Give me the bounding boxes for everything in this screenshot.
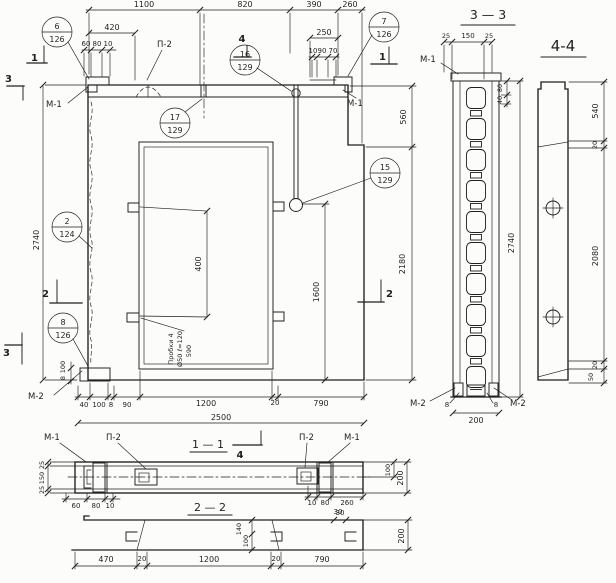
dim-260: 260 — [340, 499, 353, 507]
callout-number: 2 — [64, 217, 69, 226]
dim-80: 80 — [496, 84, 504, 92]
dim-8: 8 — [109, 401, 113, 409]
dim-200: 200 — [396, 470, 405, 485]
dim-200: 200 — [397, 528, 406, 543]
dim-8: 8 — [59, 376, 67, 380]
mark-m2-label: М-2 — [510, 399, 526, 409]
callout-sheet: 126 — [49, 35, 64, 44]
dim-470: 470 — [98, 555, 113, 564]
section-1-1-title: 1 — 1 — [192, 438, 224, 451]
callout-number: 7 — [381, 17, 386, 26]
insert-mark — [126, 532, 137, 541]
dim-100: 100 — [59, 361, 67, 373]
dim-20: 20 — [591, 361, 599, 369]
dim-790: 790 — [313, 399, 328, 408]
opening-inner — [144, 147, 268, 364]
dim-25: 25 — [38, 486, 46, 494]
foot-plate — [454, 383, 463, 396]
technical-drawing: 1100 820 390 260 420 250 60 80 10 10 90 … — [0, 0, 616, 583]
mark-m1-label: М-1 — [344, 433, 360, 443]
edge-profile — [538, 82, 568, 380]
section-4-4: 4-4 540 20 2080 20 50 — [538, 37, 607, 386]
top-node — [292, 89, 300, 97]
callout-sheet: 126 — [55, 331, 70, 340]
cut-mark-3: 3 — [5, 74, 12, 85]
dim-200: 200 — [468, 416, 483, 425]
plan-view — [80, 14, 364, 381]
callout-6-126: 6 126 — [42, 17, 89, 79]
dim-10: 10 — [309, 47, 318, 55]
callout-number: 17 — [170, 113, 180, 122]
p2-insert — [297, 468, 318, 484]
dim-150: 150 — [461, 32, 474, 40]
dim-60: 60 — [82, 40, 91, 48]
panel-outline — [88, 85, 364, 380]
dim-140: 140 — [235, 523, 243, 535]
cut-mark-3: 3 — [3, 348, 10, 359]
dim-100: 100 — [384, 464, 392, 476]
dim-height-2740: 2740 — [32, 230, 41, 250]
dim-790: 790 — [314, 555, 329, 564]
opening-outer — [139, 142, 273, 369]
cut-mark-4: 4 — [237, 450, 244, 461]
mark-m1-label: М-1 — [44, 433, 60, 443]
cut-mark-2: 2 — [386, 289, 393, 300]
dim-90: 90 — [318, 47, 327, 55]
dim-25: 25 — [38, 461, 46, 469]
dim-40: 40 — [80, 401, 89, 409]
callout-number: 8 — [60, 318, 65, 327]
dim-250: 250 — [316, 28, 331, 37]
dim-80: 80 — [321, 499, 330, 507]
bar-outline — [75, 462, 363, 493]
dim-70: 70 — [329, 47, 338, 55]
callout-number: 15 — [380, 163, 390, 172]
mark-m2-label: М-2 — [410, 399, 426, 409]
anchor-tab — [273, 202, 284, 211]
note-line-3: 590 — [185, 345, 193, 357]
dim-420: 420 — [104, 23, 119, 32]
cut-mark-4: 4 — [239, 34, 246, 45]
top-plate — [451, 73, 501, 81]
callout-2-124: 2 124 — [52, 212, 92, 248]
anchor-tab — [128, 203, 139, 212]
insert-mark — [345, 532, 356, 541]
callout-sheet: 129 — [377, 176, 392, 185]
dim-540: 540 — [591, 103, 600, 118]
m1-plate — [93, 463, 105, 492]
dim-80: 80 — [93, 40, 102, 48]
cut-mark-1: 1 — [379, 52, 386, 63]
section-2-2: 2 — 2 140 100 30 200 470 20 1200 20 790 — [72, 501, 412, 569]
dim-2500: 2500 — [211, 413, 231, 422]
dim-top-820: 820 — [237, 0, 252, 9]
mark-m1-label: М-1 — [347, 99, 363, 109]
mark-p2-label: П-2 — [106, 433, 121, 443]
dim-25: 25 — [485, 32, 493, 40]
dim-40: 40 — [496, 96, 504, 104]
dim-top-1100: 1100 — [134, 0, 154, 9]
note-line-2: Ø50 ℓ=120 — [176, 331, 184, 367]
callout-number: 6 — [54, 22, 59, 31]
p2-insert-arc — [136, 87, 161, 97]
mark-m1-label: М-1 — [420, 55, 436, 65]
hollow-cores — [465, 86, 487, 390]
drawing-sheet: 1100 820 390 260 420 250 60 80 10 10 90 … — [0, 0, 616, 583]
dim-2740: 2740 — [507, 233, 516, 253]
dim-25: 25 — [442, 32, 450, 40]
dim-1200: 1200 — [199, 555, 219, 564]
callout-7-126: 7 126 — [348, 12, 399, 76]
callout-16-129: 16 129 — [230, 45, 291, 91]
callout-17-129: 17 129 — [160, 99, 202, 138]
section-3-3: 3 — 3 25 150 25 М-1 80 40 2740 М-2 М-2 8… — [410, 7, 526, 425]
dim-30: 30 — [336, 509, 345, 517]
note-line-1: Пробки 4 — [167, 333, 175, 364]
dim-150: 150 — [38, 472, 46, 484]
dim-10: 10 — [308, 499, 317, 507]
callout-sheet: 129 — [237, 63, 252, 72]
dim-400: 400 — [194, 256, 203, 271]
callout-15-129: 15 129 — [303, 158, 400, 203]
anchor-tab — [273, 312, 284, 321]
mark-p2-label: П-2 — [157, 40, 172, 50]
dim-1600: 1600 — [312, 282, 321, 302]
callout-sheet: 129 — [167, 126, 182, 135]
anchor-tab — [127, 313, 139, 322]
cut-mark-2: 2 — [42, 289, 49, 300]
mark-m2-label: М-2 — [28, 392, 44, 402]
dim-560: 560 — [399, 109, 408, 124]
section-3-3-title: 3 — 3 — [470, 7, 506, 22]
broken-edge-wavy-line — [90, 102, 92, 364]
dim-90: 90 — [123, 401, 132, 409]
m1-plate — [319, 463, 331, 492]
dim-20: 20 — [591, 141, 599, 149]
callout-8-126: 8 126 — [48, 313, 88, 366]
dim-8: 8 — [445, 401, 449, 409]
mark-p2-label: П-2 — [299, 433, 314, 443]
dim-2180: 2180 — [398, 254, 407, 274]
dim-100: 100 — [92, 401, 105, 409]
dim-1200: 1200 — [196, 399, 216, 408]
mark-m1-label: М-1 — [46, 100, 62, 110]
callout-number: 16 — [240, 50, 250, 59]
dim-top-260: 260 — [342, 0, 357, 9]
support-block — [80, 368, 110, 381]
lifting-node — [290, 199, 303, 212]
section-4-4-title: 4-4 — [551, 37, 576, 55]
plan-dimensions: 1100 820 390 260 420 250 60 80 10 10 90 … — [32, 0, 416, 426]
rail-outline — [72, 516, 363, 550]
callout-balloons: 6 126 7 126 16 129 17 129 15 129 2 124 8… — [42, 12, 400, 366]
dim-100: 100 — [242, 535, 250, 547]
dim-2080: 2080 — [591, 246, 600, 266]
dim-20: 20 — [272, 555, 281, 563]
dim-50: 50 — [587, 373, 595, 381]
dim-20: 20 — [138, 555, 147, 563]
dim-10: 10 — [104, 40, 113, 48]
callout-sheet: 124 — [59, 230, 74, 239]
callout-sheet: 126 — [376, 30, 391, 39]
dim-10: 10 — [106, 502, 115, 510]
dim-80: 80 — [92, 502, 101, 510]
dim-top-390: 390 — [306, 0, 321, 9]
dim-8: 8 — [494, 401, 498, 409]
dim-60: 60 — [72, 502, 81, 510]
section-2-2-title: 2 — 2 — [194, 501, 226, 514]
